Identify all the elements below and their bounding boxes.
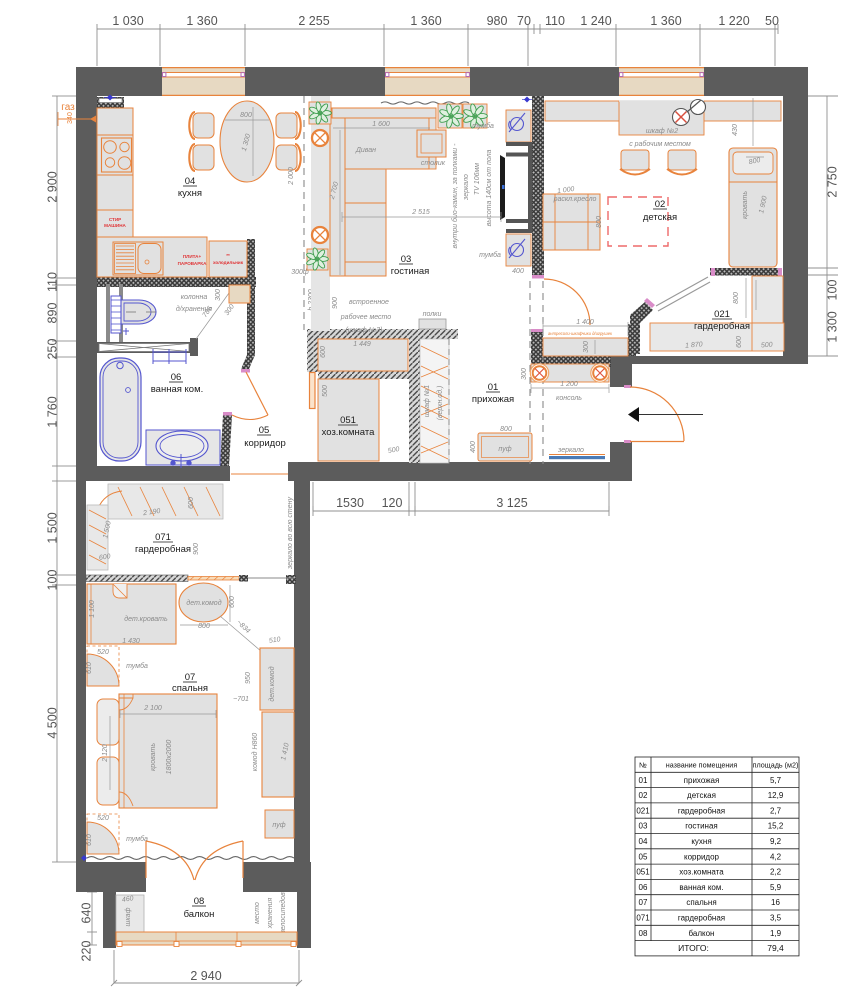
- svg-text:дет.комод: дет.комод: [186, 599, 221, 607]
- svg-text:980: 980: [487, 14, 508, 28]
- svg-text:зеркало: зеркало: [557, 447, 584, 454]
- svg-text:04: 04: [639, 837, 648, 846]
- svg-text:Диван: Диван: [355, 147, 376, 154]
- svg-text:дет.комод: дет.комод: [268, 666, 276, 701]
- svg-text:полки: полки: [423, 311, 442, 318]
- svg-text:1 760: 1 760: [45, 396, 59, 427]
- svg-text:ИТОГО:: ИТОГО:: [678, 943, 709, 953]
- svg-text:МАШИНА: МАШИНА: [104, 223, 126, 228]
- svg-text:детская: детская: [643, 212, 677, 223]
- svg-text:4,2: 4,2: [770, 852, 782, 861]
- svg-text:тумба: тумба: [479, 251, 501, 259]
- svg-text:дет.кровать: дет.кровать: [124, 615, 168, 623]
- svg-text:2 750: 2 750: [825, 166, 839, 197]
- svg-text:название помещения: название помещения: [666, 761, 738, 770]
- svg-text:2 000: 2 000: [288, 167, 295, 186]
- svg-text:1 220: 1 220: [718, 14, 749, 28]
- svg-text:гардеробная: гардеробная: [678, 806, 725, 815]
- svg-text:прихожая: прихожая: [684, 776, 720, 785]
- svg-text:2 515: 2 515: [411, 209, 430, 216]
- svg-text:071: 071: [155, 532, 171, 543]
- svg-text:520: 520: [97, 649, 109, 656]
- svg-text:340: 340: [67, 112, 74, 124]
- svg-text:внутри био-камин, за полками -: внутри био-камин, за полками -: [451, 143, 459, 249]
- svg-text:021: 021: [636, 806, 650, 815]
- svg-text:300: 300: [215, 289, 222, 301]
- svg-text:9,2: 9,2: [770, 837, 782, 846]
- svg-text:шкаф: шкаф: [125, 907, 132, 926]
- svg-text:600: 600: [188, 497, 195, 509]
- svg-text:(шкаф №3): (шкаф №3): [346, 327, 383, 334]
- svg-text:79,4: 79,4: [767, 943, 784, 953]
- svg-text:место: место: [254, 902, 261, 924]
- svg-text:15,2: 15,2: [768, 822, 784, 831]
- svg-text:тумба: тумба: [472, 122, 494, 130]
- svg-text:05: 05: [259, 425, 270, 436]
- svg-text:610: 610: [86, 834, 93, 846]
- svg-text:рабочее место: рабочее место: [340, 313, 392, 321]
- svg-text:08: 08: [639, 929, 648, 938]
- svg-text:1 400: 1 400: [576, 319, 594, 326]
- svg-text:800: 800: [500, 426, 512, 433]
- svg-text:СТИР: СТИР: [109, 217, 121, 222]
- svg-text:тумба: тумба: [126, 662, 148, 670]
- svg-text:ванная ком.: ванная ком.: [679, 883, 723, 892]
- svg-text:1 360: 1 360: [650, 14, 681, 28]
- svg-text:велосипедов: велосипедов: [279, 892, 287, 934]
- svg-text:с рабочим местом: с рабочим местом: [629, 140, 691, 148]
- svg-text:5,7: 5,7: [770, 776, 782, 785]
- svg-text:(верхн.од.): (верхн.од.): [436, 386, 444, 421]
- svg-text:прихожая: прихожая: [472, 394, 514, 405]
- svg-text:1 449: 1 449: [353, 341, 371, 348]
- svg-text:12,9: 12,9: [768, 791, 784, 800]
- svg-text:1 360: 1 360: [186, 14, 217, 28]
- svg-text:гостиная: гостиная: [391, 266, 430, 277]
- svg-text:балкон: балкон: [689, 929, 715, 938]
- svg-text:900: 900: [332, 297, 339, 309]
- svg-text:кровать: кровать: [150, 743, 157, 771]
- svg-text:2 940: 2 940: [190, 969, 221, 983]
- svg-text:гардеробная: гардеробная: [135, 544, 191, 555]
- svg-text:03: 03: [401, 254, 412, 265]
- svg-text:1800х2000: 1800х2000: [166, 740, 173, 775]
- svg-text:~701: ~701: [233, 696, 249, 703]
- svg-text:шкаф №2: шкаф №2: [646, 128, 678, 135]
- svg-text:площадь (м2): площадь (м2): [753, 761, 799, 770]
- svg-text:гардеробная: гардеробная: [678, 914, 725, 923]
- svg-text:ванная ком.: ванная ком.: [151, 384, 204, 395]
- svg-text:02: 02: [639, 791, 648, 800]
- svg-text:1 030: 1 030: [112, 14, 143, 28]
- svg-text:2,7: 2,7: [770, 806, 782, 815]
- svg-text:балкон: балкон: [184, 909, 215, 920]
- svg-text:кухня: кухня: [691, 837, 711, 846]
- svg-text:3,5: 3,5: [770, 914, 782, 923]
- svg-text:встроенное: встроенное: [349, 299, 389, 306]
- svg-text:051: 051: [636, 868, 650, 877]
- svg-text:1 100: 1 100: [89, 600, 96, 618]
- svg-text:06: 06: [171, 372, 182, 383]
- svg-text:500: 500: [761, 342, 773, 350]
- svg-text:07: 07: [185, 672, 196, 683]
- svg-text:07: 07: [639, 898, 648, 907]
- svg-text:610: 610: [86, 662, 93, 674]
- svg-text:**: **: [226, 253, 230, 258]
- svg-text:220: 220: [79, 941, 93, 962]
- svg-text:600: 600: [736, 336, 743, 348]
- svg-text:890: 890: [45, 303, 59, 324]
- svg-text:пуф: пуф: [498, 446, 511, 453]
- svg-text:антресоли-шкафчики д/игрушек: антресоли-шкафчики д/игрушек: [548, 331, 613, 336]
- svg-text:корридор: корридор: [684, 852, 720, 861]
- svg-text:70: 70: [517, 14, 531, 28]
- svg-text:071: 071: [636, 914, 650, 923]
- svg-text:400: 400: [470, 441, 477, 453]
- svg-text:08: 08: [194, 896, 205, 907]
- svg-text:1 360: 1 360: [410, 14, 441, 28]
- svg-text:16: 16: [771, 898, 780, 907]
- svg-text:600: 600: [320, 346, 327, 358]
- svg-text:800: 800: [596, 216, 603, 228]
- svg-text:ПЛИТА+: ПЛИТА+: [183, 254, 202, 259]
- svg-text:корридор: корридор: [244, 438, 286, 449]
- svg-text:3 125: 3 125: [496, 496, 527, 510]
- svg-text:зеркало: зеркало: [463, 174, 470, 201]
- svg-text:комод Н860: комод Н860: [251, 733, 259, 772]
- svg-text:хоз.комната: хоз.комната: [679, 868, 724, 877]
- svg-text:TV 106мм: TV 106мм: [474, 163, 481, 195]
- svg-text:детская: детская: [687, 791, 716, 800]
- svg-text:хранения: хранения: [267, 897, 274, 929]
- svg-text:кухня: кухня: [178, 188, 202, 199]
- svg-text:холодильник: холодильник: [213, 260, 244, 265]
- svg-text:консоль: консоль: [556, 395, 582, 402]
- svg-text:2 900: 2 900: [45, 171, 59, 202]
- svg-text:раскл.кресло: раскл.кресло: [553, 196, 597, 203]
- svg-text:800: 800: [240, 112, 252, 119]
- svg-text:01: 01: [639, 776, 648, 785]
- svg-text:2 255: 2 255: [298, 14, 329, 28]
- svg-text:300: 300: [583, 341, 590, 353]
- svg-text:спальня: спальня: [686, 898, 716, 907]
- svg-text:1 600: 1 600: [372, 121, 390, 128]
- svg-text:1 240: 1 240: [580, 14, 611, 28]
- svg-text:05: 05: [639, 852, 648, 861]
- svg-text:гостиная: гостиная: [685, 822, 718, 831]
- svg-text:хоз.комната: хоз.комната: [322, 427, 375, 438]
- svg-text:высота 140см от пола: высота 140см от пола: [486, 149, 493, 226]
- svg-text:430: 430: [732, 124, 739, 136]
- svg-text:520: 520: [97, 815, 109, 822]
- svg-text:300ф: 300ф: [291, 269, 309, 276]
- svg-text:021: 021: [714, 309, 730, 320]
- svg-text:зеркало во всю стену: зеркало во всю стену: [287, 497, 294, 570]
- svg-text:газ: газ: [61, 102, 75, 113]
- svg-text:50: 50: [765, 14, 779, 28]
- svg-text:гардеробная: гардеробная: [694, 321, 750, 332]
- svg-text:800: 800: [733, 292, 740, 304]
- svg-text:1 200: 1 200: [560, 381, 578, 388]
- svg-text:100: 100: [45, 570, 59, 591]
- svg-text:1,9: 1,9: [770, 929, 782, 938]
- svg-text:02: 02: [655, 199, 666, 210]
- svg-text:500: 500: [322, 385, 329, 397]
- svg-text:5,9: 5,9: [770, 883, 782, 892]
- svg-text:120: 120: [382, 496, 403, 510]
- svg-text:900: 900: [193, 543, 200, 555]
- svg-text:4 500: 4 500: [45, 707, 59, 738]
- svg-text:1 300: 1 300: [825, 311, 839, 342]
- svg-text:04: 04: [185, 176, 196, 187]
- svg-text:колонна: колонна: [181, 294, 208, 301]
- svg-text:пуф: пуф: [272, 822, 285, 829]
- svg-text:1 500: 1 500: [45, 512, 59, 543]
- svg-text:100: 100: [825, 280, 839, 301]
- svg-text:ПАРОВАРКА: ПАРОВАРКА: [178, 261, 207, 266]
- svg-text:2 100: 2 100: [143, 705, 162, 712]
- svg-text:300: 300: [521, 368, 528, 380]
- svg-text:06: 06: [639, 883, 648, 892]
- svg-text:№: №: [639, 761, 647, 770]
- svg-text:2,2: 2,2: [770, 868, 782, 877]
- svg-text:250: 250: [45, 339, 59, 360]
- svg-text:спальня: спальня: [172, 683, 208, 694]
- svg-text:051: 051: [340, 415, 356, 426]
- svg-text:тумба: тумба: [126, 835, 148, 843]
- svg-text:950: 950: [245, 672, 252, 684]
- svg-text:110: 110: [545, 14, 565, 28]
- svg-text:400: 400: [512, 268, 524, 275]
- svg-text:1 430: 1 430: [122, 638, 140, 645]
- svg-text:шкаф №1: шкаф №1: [424, 385, 431, 417]
- svg-text:2 120: 2 120: [102, 744, 109, 763]
- svg-text:03: 03: [639, 822, 648, 831]
- svg-text:800: 800: [198, 623, 210, 630]
- svg-text:столик: столик: [421, 160, 446, 167]
- svg-text:1530: 1530: [336, 496, 364, 510]
- svg-text:110: 110: [45, 272, 59, 292]
- svg-text:01: 01: [488, 382, 499, 393]
- svg-text:640: 640: [79, 903, 93, 924]
- svg-text:кровать: кровать: [742, 191, 749, 219]
